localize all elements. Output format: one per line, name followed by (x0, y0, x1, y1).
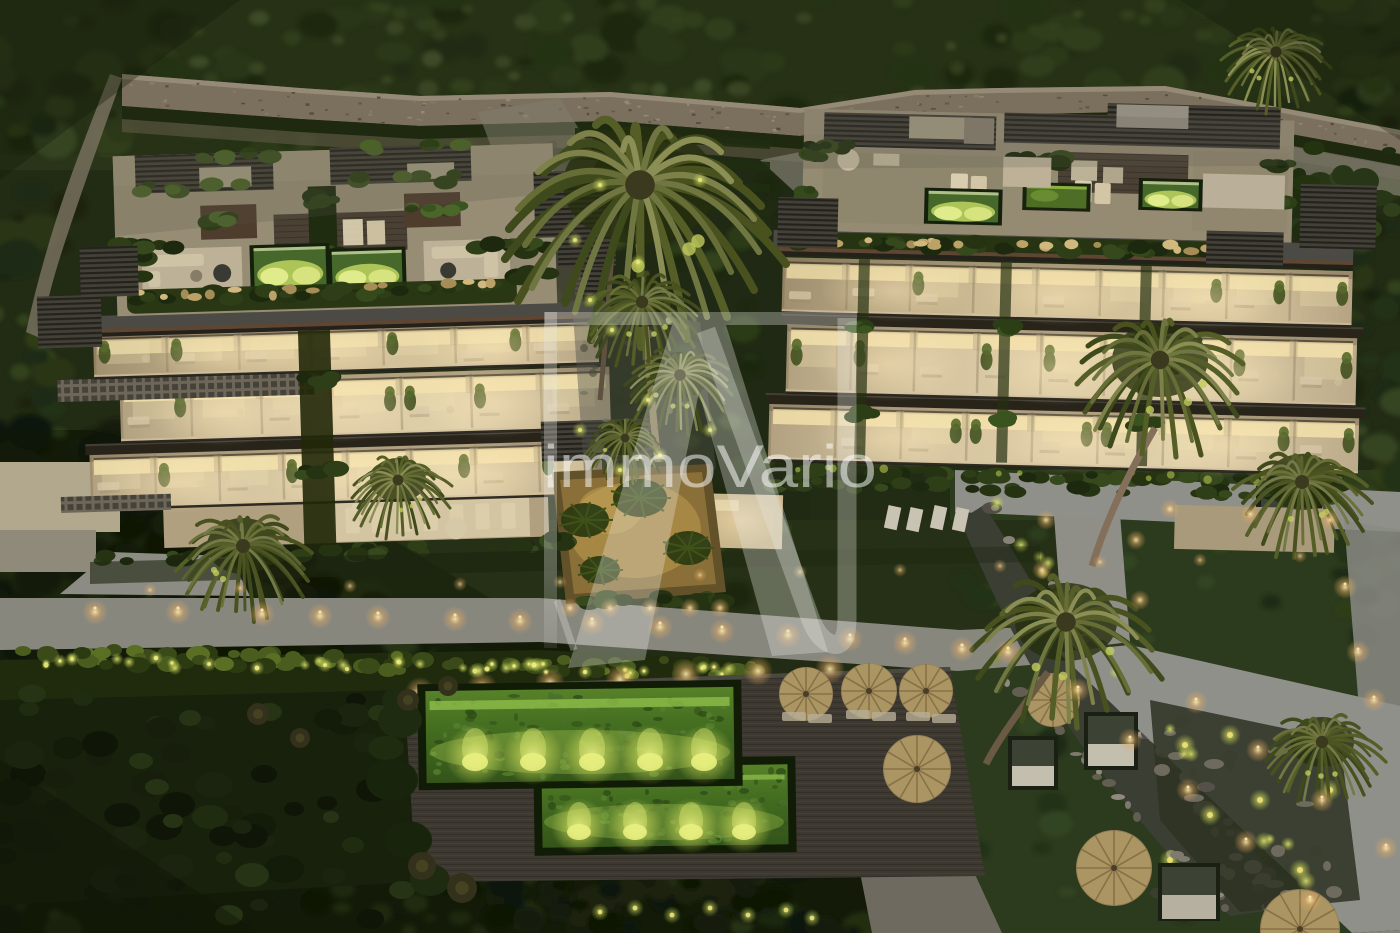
svg-text:immoVario: immoVario (543, 433, 877, 500)
